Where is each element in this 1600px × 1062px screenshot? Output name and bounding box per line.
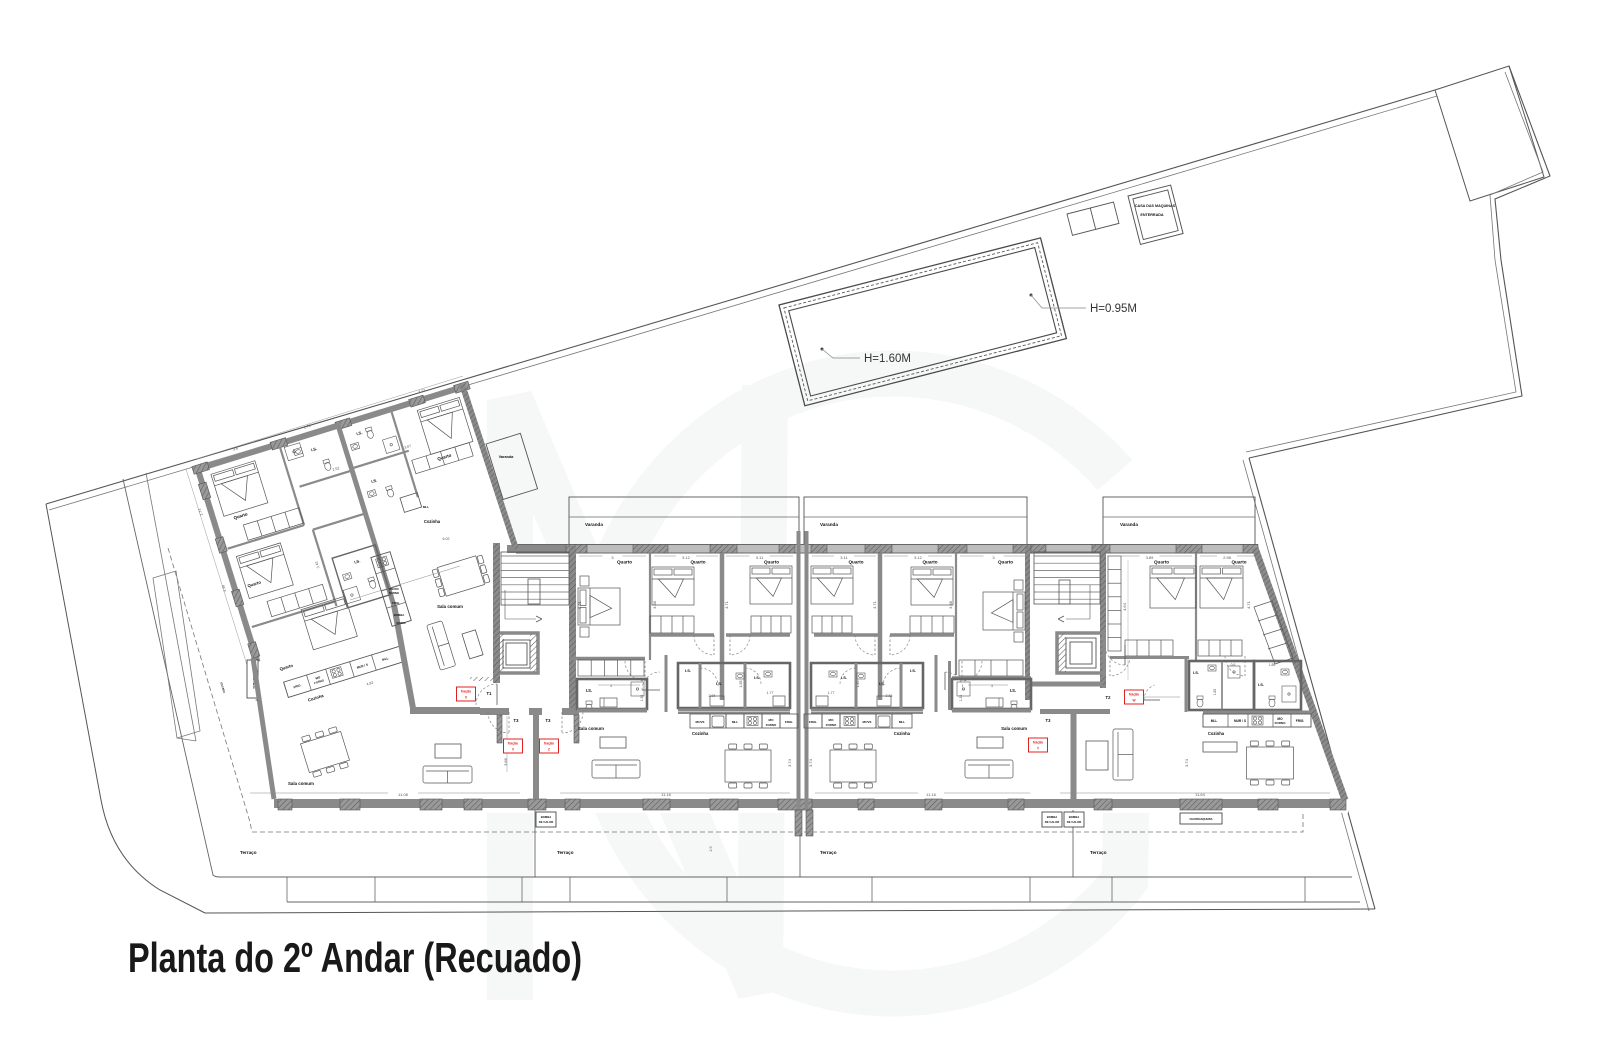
- svg-text:Varanda: Varanda: [499, 455, 515, 459]
- svg-text:MO: MO: [769, 718, 775, 722]
- svg-text:Varanda: Varanda: [585, 522, 603, 527]
- svg-text:Cozinha: Cozinha: [692, 731, 709, 736]
- svg-text:3.74: 3.74: [808, 758, 813, 767]
- svg-text:I.S.: I.S.: [1010, 688, 1016, 693]
- svg-text:Terraço: Terraço: [1090, 850, 1107, 855]
- svg-text:DE CALOR: DE CALOR: [539, 820, 554, 824]
- svg-text:Cozinha: Cozinha: [894, 731, 911, 736]
- svg-text:5.31: 5.31: [1023, 600, 1028, 609]
- svg-text:MLL: MLL: [732, 720, 738, 724]
- svg-text:4.71: 4.71: [1246, 600, 1251, 609]
- svg-text:3.89: 3.89: [1146, 555, 1155, 560]
- svg-text:Z: Z: [548, 748, 550, 752]
- svg-text:1.77: 1.77: [767, 691, 774, 695]
- svg-text:4.64: 4.64: [1122, 602, 1127, 611]
- svg-text:BOMBA: BOMBA: [1069, 815, 1080, 819]
- svg-text:MLL: MLL: [1211, 719, 1218, 723]
- svg-text:FORNO: FORNO: [389, 591, 400, 595]
- svg-text:6.02: 6.02: [443, 537, 450, 541]
- svg-text:MLL: MLL: [423, 505, 429, 509]
- svg-text:3.12: 3.12: [682, 555, 691, 560]
- svg-text:3.38: 3.38: [948, 600, 953, 609]
- svg-text:FRIG.: FRIG.: [785, 720, 793, 724]
- svg-text:0.6: 0.6: [1231, 663, 1236, 667]
- svg-text:1.35: 1.35: [640, 695, 644, 702]
- svg-text:T3: T3: [514, 718, 520, 723]
- svg-text:I.S.: I.S.: [685, 668, 691, 673]
- svg-text:I.S.: I.S.: [1258, 682, 1264, 687]
- svg-text:Quarto: Quarto: [998, 560, 1013, 565]
- svg-text:Quarto: Quarto: [1154, 560, 1169, 565]
- svg-text:6: 6: [255, 699, 259, 701]
- svg-text:Quarto: Quarto: [617, 560, 632, 565]
- svg-text:3.74: 3.74: [1184, 758, 1189, 767]
- svg-text:Sala comum: Sala comum: [437, 604, 463, 609]
- svg-text:Terraço: Terraço: [557, 850, 574, 855]
- svg-text:1.85: 1.85: [856, 681, 860, 688]
- svg-text:CASA DAS MAQUINAS: CASA DAS MAQUINAS: [1135, 204, 1176, 208]
- svg-text:MO: MO: [829, 718, 835, 722]
- svg-text:T3: T3: [546, 718, 552, 723]
- svg-text:Quarto: Quarto: [1231, 560, 1246, 565]
- svg-text:MLL: MLL: [899, 720, 905, 724]
- svg-text:3.11: 3.11: [756, 555, 764, 560]
- svg-text:FORNO: FORNO: [766, 723, 777, 727]
- svg-text:fração: fração: [1129, 693, 1139, 697]
- svg-text:T1: T1: [487, 691, 493, 696]
- svg-text:Quarto: Quarto: [690, 560, 705, 565]
- svg-text:1.35: 1.35: [959, 695, 963, 702]
- svg-text:fração: fração: [544, 742, 554, 746]
- svg-text:3.38: 3.38: [652, 600, 657, 609]
- svg-text:Quarto: Quarto: [764, 560, 779, 565]
- svg-text:Sala comum: Sala comum: [288, 781, 314, 786]
- svg-text:Terraço: Terraço: [820, 850, 837, 855]
- svg-text:Quarto: Quarto: [848, 560, 863, 565]
- svg-text:3: 3: [991, 684, 993, 688]
- svg-text:DE CALOR: DE CALOR: [1067, 820, 1082, 824]
- svg-text:FRIG.: FRIG.: [809, 720, 817, 724]
- svg-text:1.85: 1.85: [1213, 689, 1217, 696]
- svg-text:Cozinha: Cozinha: [424, 519, 441, 524]
- svg-text:1.85: 1.85: [739, 681, 743, 688]
- svg-text:T3: T3: [1046, 718, 1052, 723]
- svg-text:MUVS: MUVS: [696, 720, 705, 724]
- svg-text:I.S.: I.S.: [716, 681, 722, 686]
- svg-text:ENTERRADA: ENTERRADA: [1140, 213, 1163, 217]
- svg-text:I.S.: I.S.: [1193, 670, 1199, 675]
- svg-text:H=0.95M: H=0.95M: [1090, 303, 1137, 315]
- svg-text:4.71: 4.71: [872, 600, 877, 609]
- svg-text:MUR/S: MUR/S: [396, 621, 405, 625]
- svg-text:3.11: 3.11: [840, 555, 848, 560]
- svg-text:W: W: [1132, 699, 1135, 703]
- svg-text:4.71: 4.71: [724, 600, 729, 609]
- svg-text:I.S.: I.S.: [879, 681, 885, 686]
- svg-text:FORNO: FORNO: [1275, 721, 1286, 725]
- svg-text:BOMBA: BOMBA: [541, 815, 552, 819]
- svg-text:BOMBA: BOMBA: [1047, 815, 1058, 819]
- svg-text:2.9: 2.9: [709, 847, 713, 852]
- svg-text:Sala comum: Sala comum: [578, 726, 604, 731]
- svg-text:FRIG.: FRIG.: [1296, 719, 1305, 723]
- svg-text:3.74: 3.74: [787, 758, 792, 767]
- svg-text:fração: fração: [1033, 741, 1043, 745]
- svg-text:2.98: 2.98: [1223, 555, 1232, 560]
- svg-text:Terraço: Terraço: [240, 850, 257, 855]
- svg-text:MUVS: MUVS: [863, 720, 872, 724]
- svg-text:T2: T2: [1106, 695, 1112, 700]
- svg-text:BOMBA: BOMBA: [394, 613, 405, 617]
- svg-text:fração: fração: [461, 690, 471, 694]
- svg-text:MUR / S: MUR / S: [1234, 719, 1246, 723]
- svg-text:H=1.60M: H=1.60M: [864, 353, 911, 365]
- svg-text:fração: fração: [508, 742, 518, 746]
- svg-text:Quarto: Quarto: [922, 560, 937, 565]
- svg-text:Planta do 2º Andar (Recuado): Planta do 2º Andar (Recuado): [128, 934, 582, 981]
- svg-text:DE CALOR: DE CALOR: [1045, 820, 1060, 824]
- svg-text:FORNO: FORNO: [826, 723, 837, 727]
- svg-text:3.86: 3.86: [503, 757, 508, 766]
- svg-text:3.12: 3.12: [914, 555, 923, 560]
- svg-text:11.08: 11.08: [398, 792, 408, 797]
- svg-text:CHURRASQUEIRA: CHURRASQUEIRA: [1189, 817, 1212, 821]
- svg-text:Sala comum: Sala comum: [1001, 726, 1027, 731]
- svg-text:I.S.: I.S.: [910, 668, 916, 673]
- svg-text:I.S.: I.S.: [586, 688, 592, 693]
- svg-text:1.85: 1.85: [1269, 663, 1276, 667]
- svg-text:Varanda: Varanda: [820, 522, 838, 527]
- svg-text:I.S.: I.S.: [841, 675, 847, 680]
- svg-text:I.S.: I.S.: [754, 675, 760, 680]
- svg-text:3: 3: [610, 684, 612, 688]
- svg-text:11.16: 11.16: [926, 792, 936, 797]
- svg-text:FRIG.: FRIG.: [392, 601, 400, 605]
- svg-text:Cozinha: Cozinha: [1208, 731, 1225, 736]
- svg-text:1.77: 1.77: [828, 691, 835, 695]
- svg-text:Varanda: Varanda: [1120, 522, 1138, 527]
